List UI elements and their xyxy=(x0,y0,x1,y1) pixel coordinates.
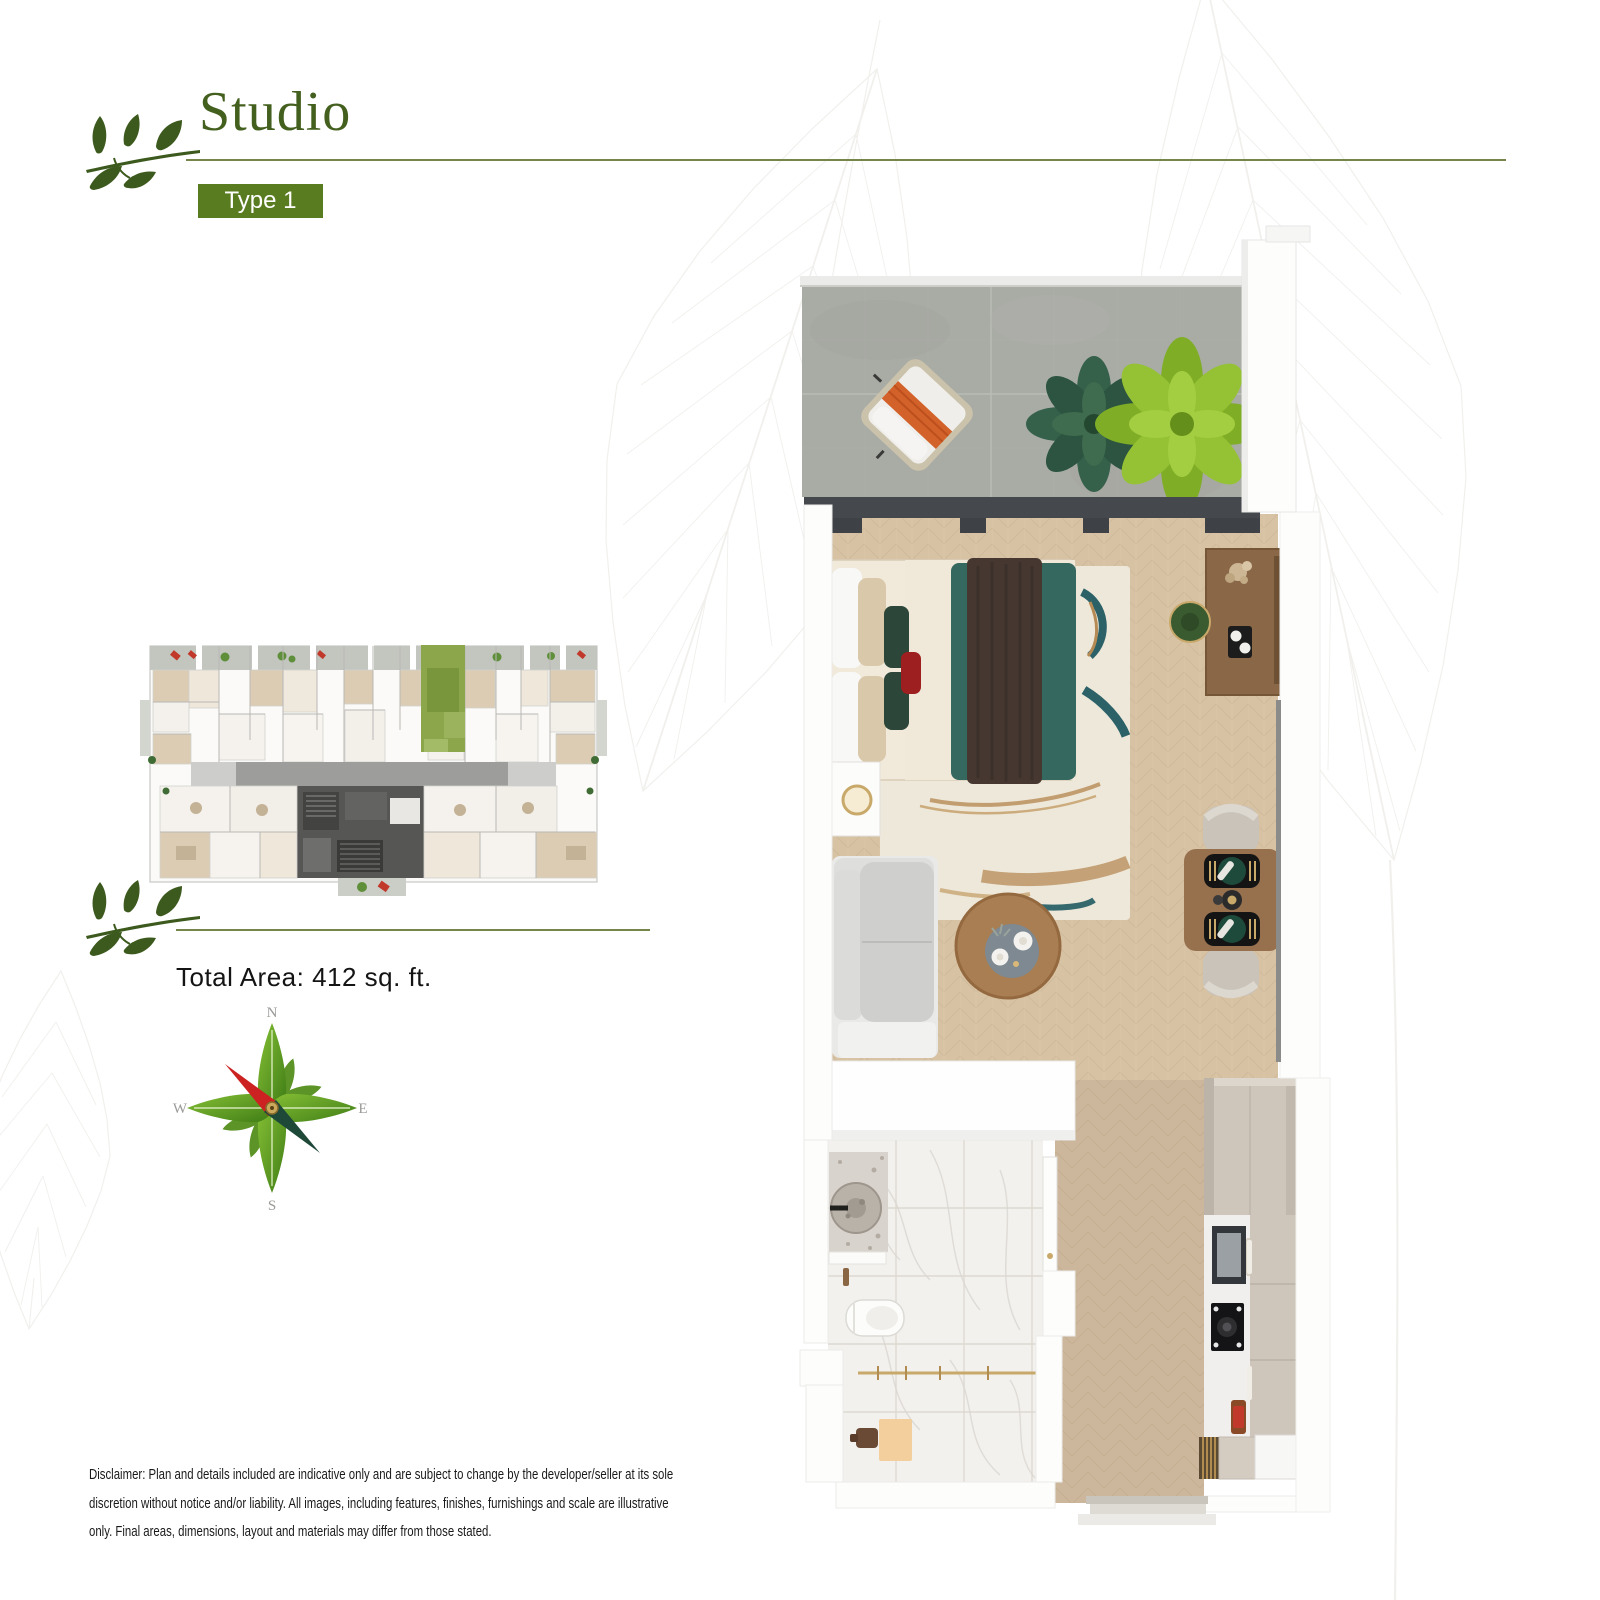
svg-text:W: W xyxy=(173,1101,188,1117)
svg-text:N: N xyxy=(267,1005,278,1021)
svg-text:E: E xyxy=(358,1101,367,1117)
svg-text:S: S xyxy=(268,1198,276,1214)
